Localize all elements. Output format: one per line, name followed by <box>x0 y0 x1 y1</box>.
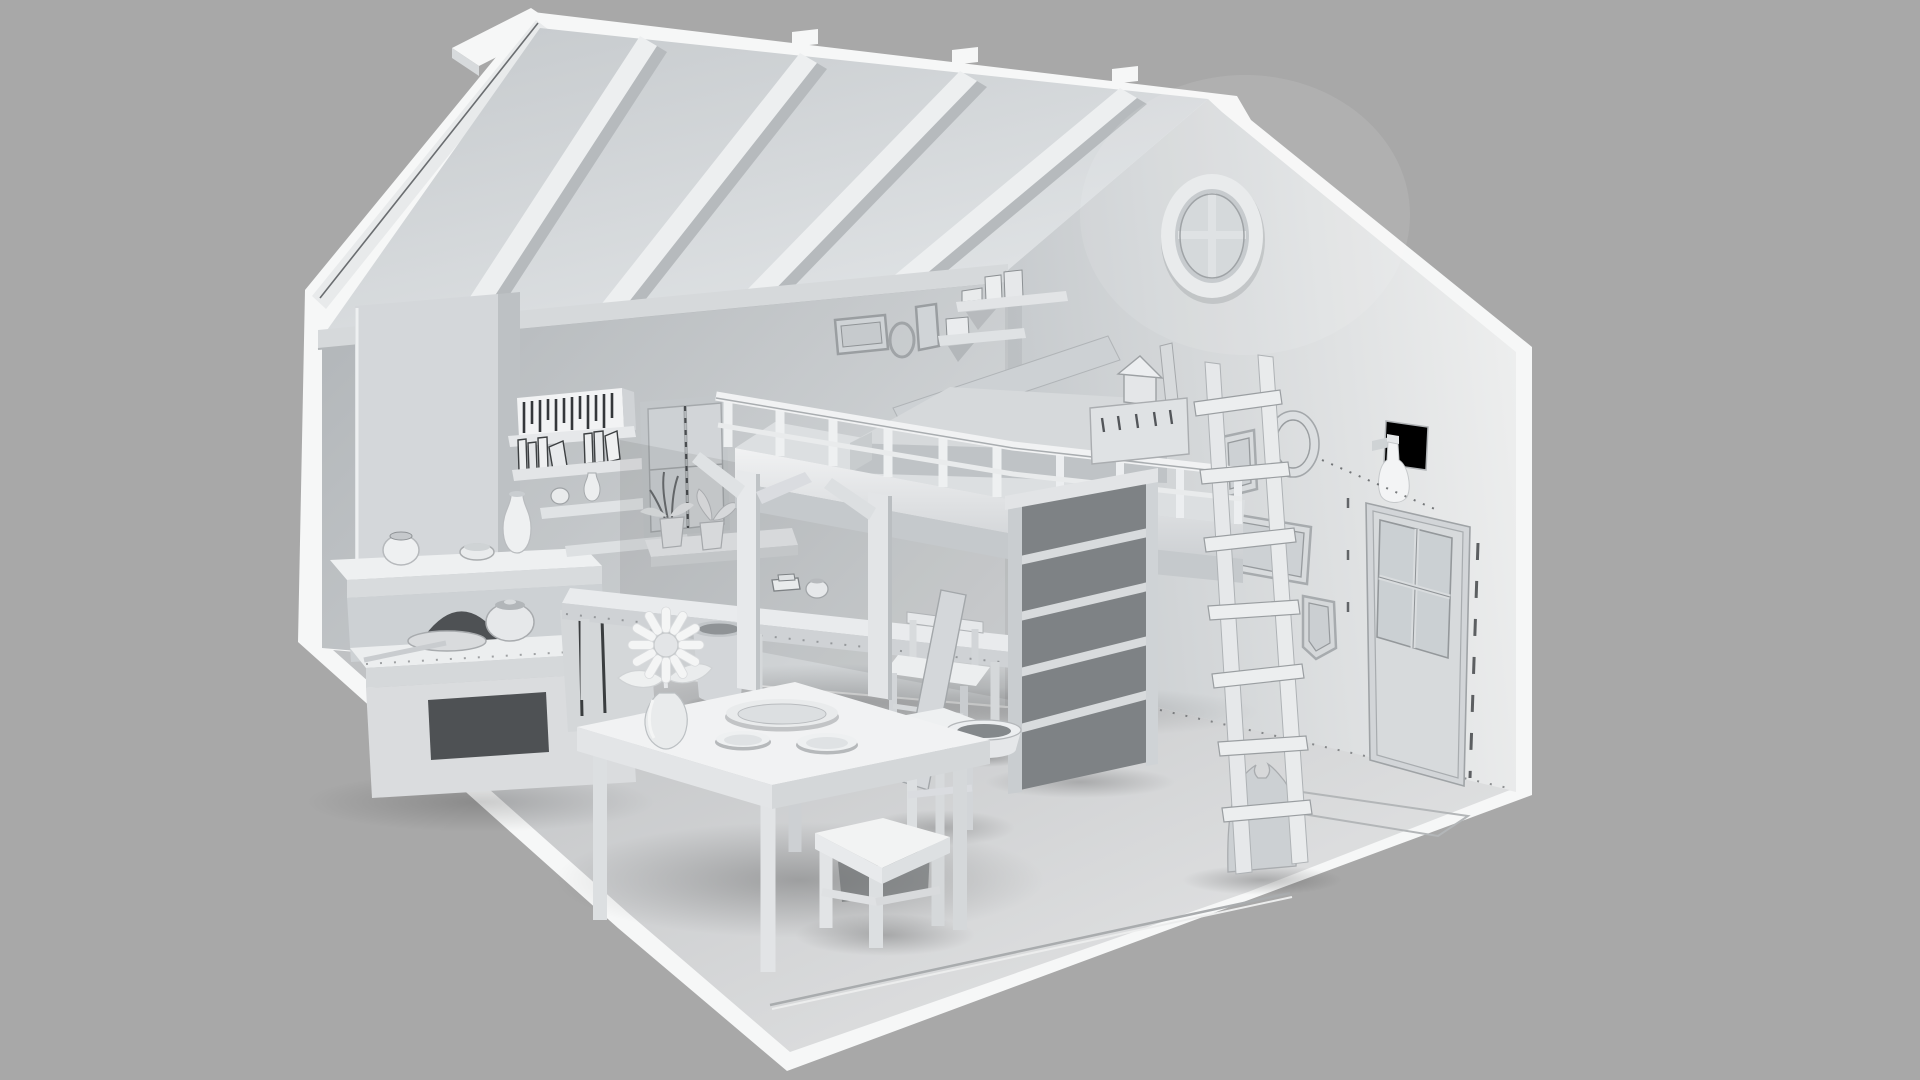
frame-vertical-small <box>916 304 939 350</box>
rafter-tab <box>792 29 818 47</box>
frame-pentagon <box>1303 596 1336 659</box>
attic-room-render <box>0 0 1920 1080</box>
chimney-breast <box>355 294 498 572</box>
plate-well <box>724 735 762 746</box>
jar-small <box>551 488 569 504</box>
books-row-right <box>584 431 620 464</box>
shelf-box <box>1004 270 1023 299</box>
platter-well <box>738 704 826 724</box>
bowl-rim <box>464 543 490 551</box>
book <box>538 437 548 470</box>
bin-opening <box>699 624 739 635</box>
daisy-petal <box>628 641 654 650</box>
slatted-crate-side <box>622 388 636 430</box>
door-panes <box>1377 520 1452 658</box>
rafter-tab <box>952 47 978 65</box>
pot-lid-knob <box>504 600 516 605</box>
book-leaning <box>605 431 620 462</box>
daisy-petal <box>678 641 704 650</box>
pot-round-rim <box>390 532 412 540</box>
bookshelf-interior <box>1020 480 1148 790</box>
book <box>528 442 537 471</box>
book <box>584 433 593 464</box>
loft-post-side <box>756 474 760 692</box>
vase-tall-rim <box>509 491 525 497</box>
book-on-desk-small <box>778 574 795 581</box>
round-window-muntin-horizontal <box>1178 231 1246 239</box>
render-canvas <box>0 0 1920 1080</box>
daisy-petal <box>662 607 671 633</box>
book <box>594 431 604 463</box>
book <box>518 439 527 471</box>
daisy-center <box>654 633 678 657</box>
frame-rect-small-inner <box>841 322 882 347</box>
pot-on-desk-rim <box>810 579 824 584</box>
loft-post-side <box>888 496 892 700</box>
shelf-box <box>985 275 1002 301</box>
bookshelf-right-stile <box>1146 478 1158 766</box>
frame-pentagon-inner <box>1309 603 1330 651</box>
plate-well <box>806 737 848 749</box>
rafter-tab <box>1112 66 1138 84</box>
daisy-petal <box>662 657 671 683</box>
oven-storage-opening <box>428 692 549 760</box>
